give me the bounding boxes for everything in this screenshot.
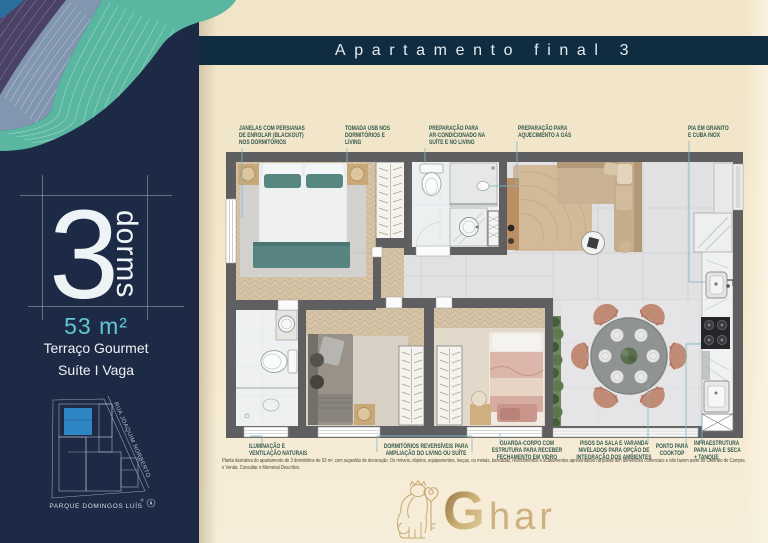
svg-text:RUA JOAQUIM NORBERTO: RUA JOAQUIM NORBERTO bbox=[112, 401, 151, 479]
svg-text:har: har bbox=[489, 496, 556, 538]
svg-text:PARQUE DOMINGOS LUÍS: PARQUE DOMINGOS LUÍS bbox=[49, 501, 142, 510]
svg-text:G: G bbox=[443, 481, 485, 541]
